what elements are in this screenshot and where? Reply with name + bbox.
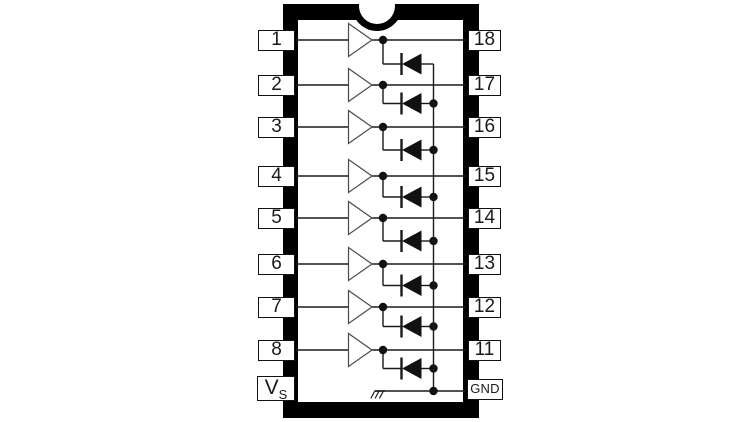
diode-icon: [402, 93, 421, 114]
pin-box-left-3: 3: [258, 117, 295, 138]
pin-box-left-1-label: 1: [271, 29, 282, 50]
pin-box-left-7-label: 7: [271, 296, 282, 317]
channel-3: [296, 111, 466, 162]
pin-box-left-6: 6: [258, 254, 295, 275]
output-junction-dot: [379, 260, 387, 268]
pin-box-right-8-label: 11: [475, 339, 495, 360]
pin-box-left-5: 5: [258, 208, 295, 229]
buffer-icon: [349, 160, 373, 193]
channel-2: [296, 69, 466, 115]
pin-box-left-7: 7: [258, 297, 295, 318]
ground-hatch: [371, 391, 375, 398]
ground-hatch: [379, 391, 383, 398]
pin-box-right-5-label: 14: [474, 207, 495, 228]
ground-hatch: [375, 391, 379, 398]
ic-pinout-diagram: VS GND 118217316415514613712811: [0, 0, 750, 422]
diode-icon: [402, 316, 421, 337]
pin-box-left-3-label: 3: [271, 116, 282, 137]
pin-box-left-4: 4: [258, 166, 295, 187]
pin-box-right-2: 17: [468, 75, 501, 96]
output-junction-dot: [379, 214, 387, 222]
channel-6: [296, 248, 466, 297]
pin-box-right-7: 12: [468, 297, 501, 318]
output-junction-dot: [379, 346, 387, 354]
pin-box-right-3: 16: [468, 117, 501, 138]
buffer-icon: [349, 111, 373, 144]
channel-1: [296, 24, 466, 76]
pin-box-right-1-label: 18: [474, 29, 495, 50]
ground-icon: [371, 391, 385, 398]
channel-8: [296, 334, 466, 380]
pin-box-right-2-label: 17: [474, 74, 495, 95]
pin-box-right-6-label: 13: [474, 253, 495, 274]
diode-icon: [402, 187, 421, 208]
output-junction-dot: [379, 303, 387, 311]
diode-icon: [402, 358, 421, 379]
buffer-icon: [349, 248, 373, 281]
buffer-icon: [349, 24, 373, 57]
pin-box-right-1: 18: [468, 30, 501, 51]
buffer-icon: [349, 291, 373, 324]
diode-icon: [402, 231, 421, 252]
pin-box-left-2: 2: [258, 75, 295, 96]
pin-box-gnd: GND: [467, 379, 503, 400]
diode-icon: [402, 140, 421, 161]
ground-junction-dot: [429, 387, 437, 395]
pin-box-left-8-label: 8: [271, 339, 282, 360]
output-junction-dot: [379, 36, 387, 44]
pin-label-vs: V: [265, 376, 279, 399]
pin-box-left-2-label: 2: [271, 74, 282, 95]
pin-label-vs-sub: S: [279, 387, 288, 402]
diode-icon: [402, 54, 421, 75]
pin-label-gnd: GND: [470, 381, 500, 396]
pin-box-left-6-label: 6: [271, 253, 282, 274]
output-junction-dot: [379, 81, 387, 89]
pin-box-right-3-label: 16: [474, 116, 495, 137]
channel-7: [296, 291, 466, 338]
pin-box-right-4-label: 15: [474, 165, 495, 186]
channel-5: [296, 202, 466, 253]
pin-box-right-4: 15: [468, 166, 501, 187]
pin-box-right-6: 13: [468, 254, 501, 275]
pin-box-vs: VS: [257, 376, 295, 401]
pin-box-left-5-label: 5: [271, 207, 282, 228]
diode-icon: [402, 275, 421, 296]
channel-4: [296, 160, 466, 209]
output-junction-dot: [379, 123, 387, 131]
buffer-icon: [349, 202, 373, 235]
output-junction-dot: [379, 172, 387, 180]
internal-schematic: [0, 0, 750, 422]
pin-box-right-8: 11: [468, 340, 501, 361]
pin-box-left-4-label: 4: [271, 165, 282, 186]
pin-box-right-5: 14: [468, 208, 501, 229]
pin-box-right-7-label: 12: [474, 296, 495, 317]
pin-box-left-1: 1: [258, 30, 295, 51]
pin-box-left-8: 8: [258, 340, 295, 361]
buffer-icon: [349, 69, 373, 102]
buffer-icon: [349, 334, 373, 367]
